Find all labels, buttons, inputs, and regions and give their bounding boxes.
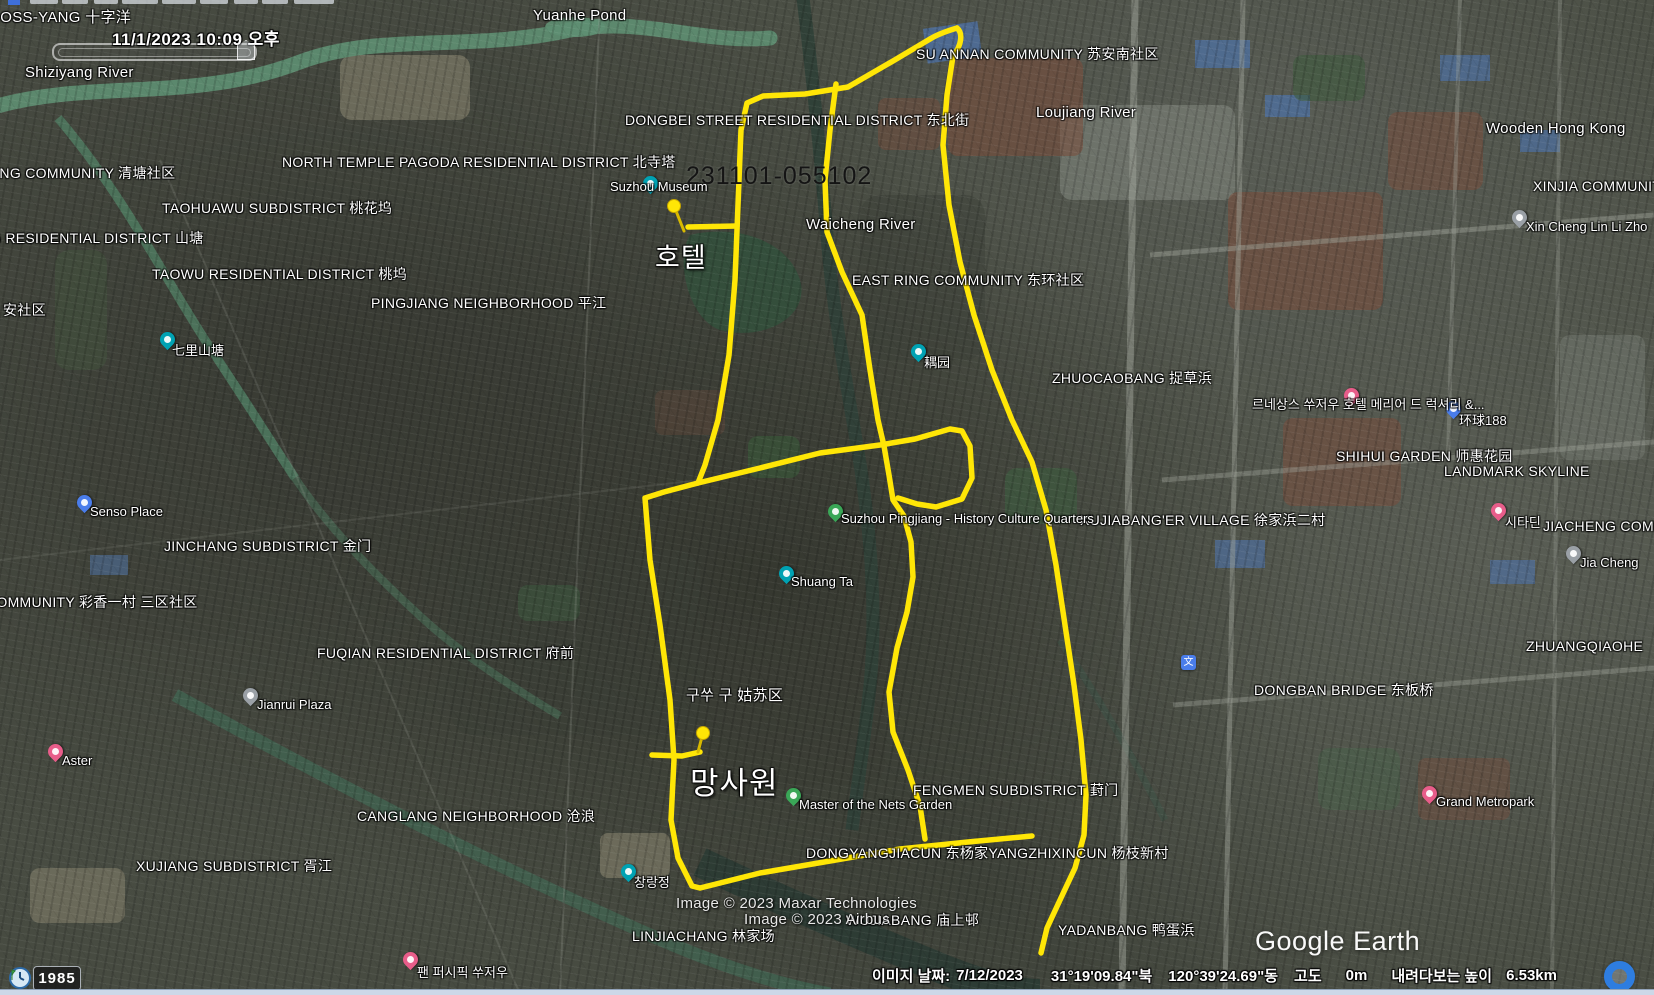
map-place-label: JIACHENG COMMUNITY — [1543, 518, 1654, 534]
pin-place-label[interactable]: 七里山塘 — [172, 340, 224, 359]
map-place-label: FUQIAN RESIDENTIAL DISTRICT 府前 — [317, 643, 574, 663]
altitude-label: 고도 — [1294, 965, 1322, 986]
toolbar-button-remnant — [62, 0, 88, 4]
map-place-label: 安社区 — [3, 300, 46, 320]
map-place-label: LINJIACHANG 林家场 — [632, 926, 775, 946]
altitude-value: 0m — [1346, 967, 1368, 984]
map-place-label: PINGJIANG NEIGHBORHOOD 平江 — [371, 293, 606, 313]
google-earth-window: { "app": { "logo_text": "Google Earth" }… — [0, 0, 1654, 994]
track-name-label: 231101-055102 — [686, 162, 872, 191]
pin-place-label[interactable]: 耦园 — [924, 352, 950, 371]
map-place-label: ZHUANGQIAOHE — [1526, 638, 1643, 654]
toolbar-button-remnant — [162, 0, 196, 4]
map-place-label: DONGBEI STREET RESIDENTIAL DISTRICT 东北街 — [625, 110, 969, 130]
map-place-label: LANDMARK SKYLINE — [1444, 463, 1590, 479]
map-place-label: Wooden Hong Kong — [1486, 120, 1626, 137]
waypoint-label-hotel: 호텔 — [655, 236, 707, 275]
toolbar-button-remnant — [94, 0, 118, 4]
culture-place-icon[interactable]: 文 — [1181, 655, 1196, 670]
toolbar-remnant — [0, 0, 760, 5]
map-place-label: XINJIA COMMUNITY — [1533, 178, 1654, 194]
pin-place-label[interactable]: Xin Cheng Lin Li Zho — [1526, 219, 1647, 234]
longitude-value: 120°39'24.69"동 — [1168, 965, 1278, 986]
pin-place-label[interactable]: Jia Cheng — [1580, 555, 1639, 570]
pin-place-label[interactable]: Senso Place — [90, 504, 163, 519]
map-place-label: QINGTANG COMMUNITY 清塘社区 — [0, 163, 175, 183]
google-earth-logo: Google Earth — [1255, 926, 1420, 957]
image-date-value: 7/12/2023 — [956, 967, 1023, 984]
eye-altitude-label: 내려다보는 높이 — [1391, 965, 1492, 986]
toolbar-button-remnant — [30, 0, 58, 4]
toolbar-button-remnant — [294, 0, 334, 4]
pin-place-label[interactable]: Suzhou Pingjiang - History Culture Quart… — [841, 511, 1094, 526]
pin-place-label[interactable]: Shuang Ta — [791, 574, 853, 589]
waypoint-label-garden: 망사원 — [690, 758, 779, 803]
image-date-label: 이미지 날짜: — [872, 965, 950, 986]
pin-place-label[interactable]: 시타딘 — [1505, 512, 1541, 531]
map-place-label: CROSS-YANG 十字洋 — [0, 6, 131, 27]
historical-imagery-year[interactable]: 1985 — [33, 966, 81, 991]
streaming-indic1ator-icon — [1604, 961, 1635, 992]
map-place-label: 구쑤 구 姑苏区 — [686, 684, 783, 705]
map-place-label: YADANBANG 鸭蛋浜 — [1058, 920, 1195, 940]
map-place-label: Waicheng River — [806, 216, 916, 233]
toolbar-button-remnant — [122, 0, 158, 4]
map-place-label: EAST RING COMMUNITY 东环社区 — [852, 270, 1084, 290]
imagery-attribution-1: Image © 2023 Maxar Technologies — [676, 895, 917, 912]
map-place-label: Loujiang River — [1036, 104, 1136, 121]
imagery-attribution-2: Image © 2023 Airbus — [744, 911, 890, 928]
map-place-label: XUJIANG SUBDISTRICT 胥江 — [136, 856, 332, 876]
pin-place-label[interactable]: 창랑정 — [634, 872, 670, 891]
map-place-label: NORTH TEMPLE PAGODA RESIDENTIAL DISTRICT… — [282, 152, 676, 172]
map-place-label: Yuanhe Pond — [533, 7, 626, 24]
toolbar-button-remnant — [234, 0, 258, 4]
window-edge — [0, 989, 1654, 995]
map-place-label: DONGYANGJIACUN 东杨家YANGZHIXINCUN 杨枝新村 — [806, 843, 1169, 863]
status-bar: 이미지 날짜: 7/12/2023 31°19'09.84"북 120°39'2… — [872, 965, 1557, 986]
eye-altitude-value: 6.53km — [1506, 967, 1557, 984]
pin-place-label[interactable]: Grand Metropark — [1436, 794, 1534, 809]
map-place-label: DONGBAN BRIDGE 东板桥 — [1254, 680, 1434, 700]
pin-place-label[interactable]: Master of the Nets Garden — [799, 797, 952, 812]
toolbar-button-remnant — [200, 0, 228, 4]
map-place-label: XUJIABANG'ER VILLAGE 徐家浜二村 — [1080, 510, 1325, 530]
latitude-value: 31°19'09.84"북 — [1051, 965, 1152, 986]
map-place-label: CANGLANG NEIGHBORHOOD 沧浪 — [357, 806, 595, 826]
historical-imagery-clock-icon[interactable] — [8, 966, 32, 990]
map-place-label: Shiziyang River — [25, 64, 134, 81]
map-place-label: TAOWU RESIDENTIAL DISTRICT 桃坞 — [152, 264, 407, 284]
map-place-label: SHANTANG RESIDENTIAL DISTRICT 山塘 — [0, 228, 204, 248]
pin-place-label[interactable]: 르네상스 쑤저우 호텔 메리어 드 럭셔리 &... — [1252, 394, 1485, 413]
map-place-label: TAOHUAWU SUBDISTRICT 桃花坞 — [162, 198, 392, 218]
pin-place-label[interactable]: Jianrui Plaza — [257, 697, 331, 712]
toolbar-icon — [8, 0, 20, 5]
toolbar-button-remnant — [262, 0, 288, 4]
map-place-label: COMMUNITY 彩香一村 三区社区 — [0, 592, 198, 612]
pin-place-label[interactable]: 팬 퍼시픽 쑤저우 — [417, 962, 508, 981]
map-place-label: ZHUOCAOBANG 捉草浜 — [1052, 368, 1212, 388]
map-place-label: SU ANNAN COMMUNITY 苏安南社区 — [916, 44, 1159, 64]
map-place-label: JINCHANG SUBDISTRICT 金门 — [164, 536, 371, 556]
pin-place-label[interactable]: Aster — [62, 753, 92, 768]
